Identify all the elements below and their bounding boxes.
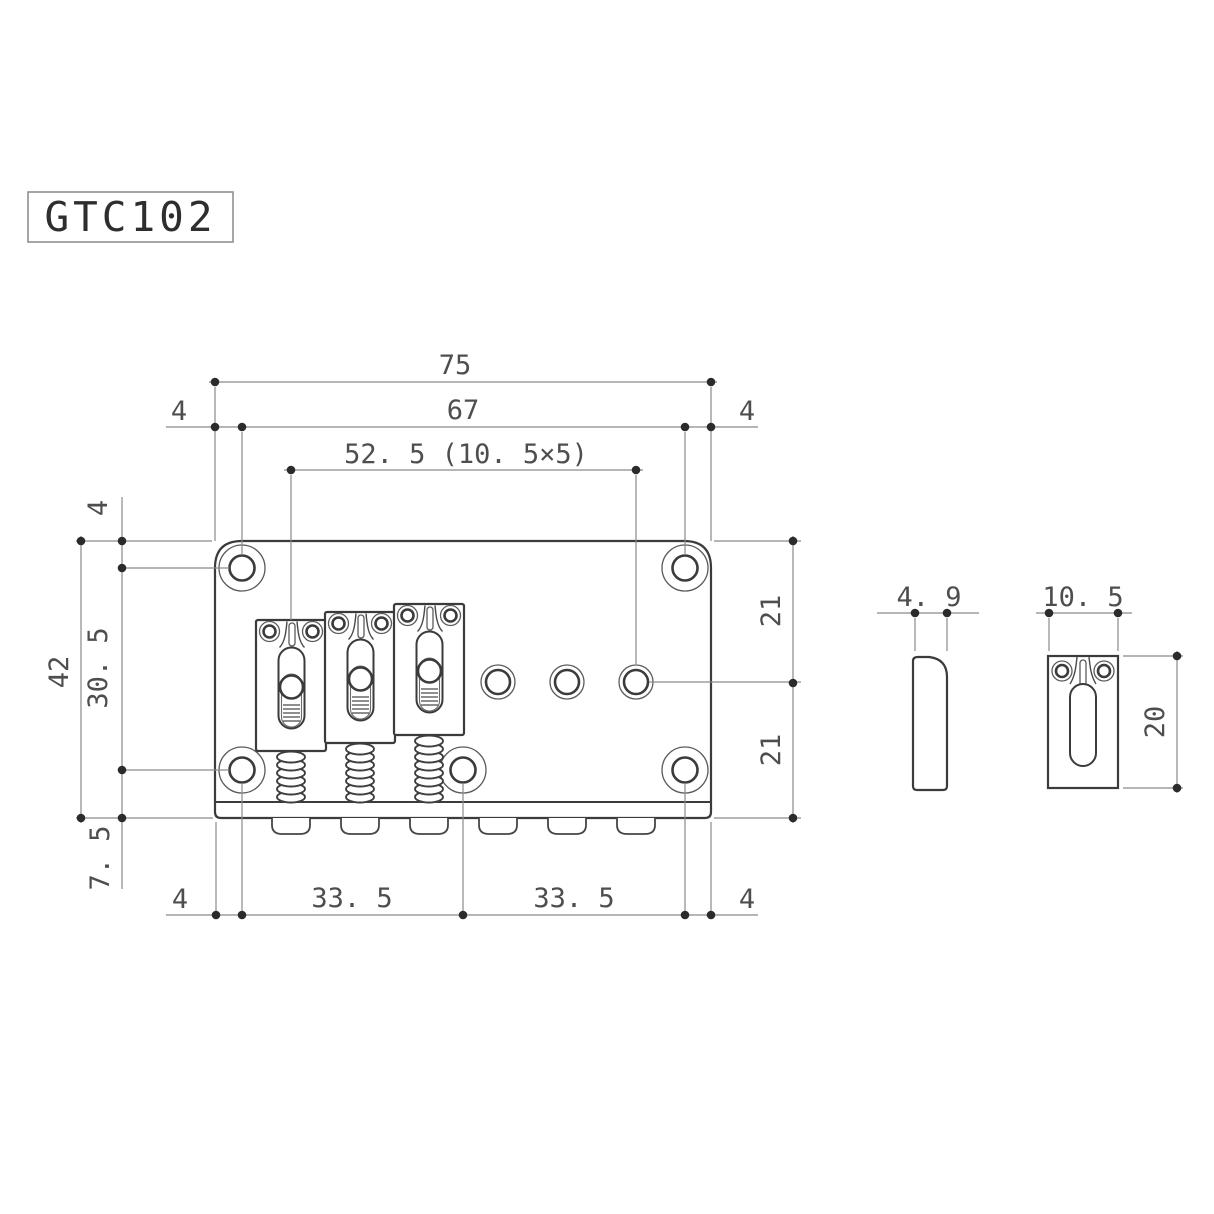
svg-text:52. 5 (10. 5×5): 52. 5 (10. 5×5) [344, 439, 588, 470]
svg-text:4. 9: 4. 9 [896, 582, 961, 613]
svg-text:33. 5: 33. 5 [311, 883, 392, 914]
svg-text:75: 75 [439, 350, 472, 381]
svg-text:4: 4 [172, 884, 188, 915]
saddle-side-view: 4. 9 [877, 582, 979, 790]
svg-text:10. 5: 10. 5 [1042, 582, 1123, 613]
dim-overall-width: 75 [209, 350, 717, 386]
svg-text:20: 20 [1140, 706, 1171, 739]
saddle-2 [325, 612, 395, 743]
dim-hole-span-top: 4 67 4 [166, 395, 758, 431]
svg-text:4: 4 [739, 884, 755, 915]
saddle-spring-3 [415, 736, 443, 803]
svg-text:4: 4 [83, 500, 114, 516]
dim-left-column: 4 30. 5 7. 5 [83, 497, 126, 891]
dim-overall-depth: 42 [44, 536, 85, 823]
svg-text:4: 4 [171, 396, 187, 427]
dim-right-column: 21 21 [756, 536, 797, 823]
dim-string-spread: 52. 5 (10. 5×5) [284, 439, 643, 474]
saddle-1 [256, 620, 326, 751]
saddle-spring-2 [346, 744, 374, 803]
svg-text:30. 5: 30. 5 [83, 627, 114, 708]
svg-text:4: 4 [739, 396, 755, 427]
string-hole-6 [619, 665, 653, 699]
svg-text:67: 67 [447, 395, 480, 426]
technical-drawing-canvas: GTC102 [0, 0, 1214, 1214]
gtc102-bridge-drawing: GTC102 [0, 0, 1214, 1214]
svg-text:42: 42 [44, 656, 75, 689]
model-label: GTC102 [44, 193, 216, 241]
svg-text:21: 21 [756, 734, 787, 767]
dim-hole-span-bottom: 4 33. 5 33. 5 4 [166, 883, 758, 919]
string-hole-4 [481, 665, 515, 699]
saddle-top-view: 10. 5 20 [1036, 582, 1183, 793]
dim-saddle-length: 20 [1123, 651, 1183, 793]
saddle-side-profile [913, 657, 947, 790]
dim-saddle-thickness: 4. 9 [877, 582, 979, 651]
dim-saddle-width: 10. 5 [1036, 582, 1132, 651]
string-hole-5 [550, 665, 584, 699]
svg-text:7. 5: 7. 5 [85, 825, 116, 890]
svg-text:21: 21 [756, 595, 787, 628]
model-label-box: GTC102 [28, 192, 233, 242]
saddle-spring-1 [277, 752, 305, 803]
svg-text:33. 5: 33. 5 [533, 883, 614, 914]
saddle-3 [394, 604, 464, 735]
